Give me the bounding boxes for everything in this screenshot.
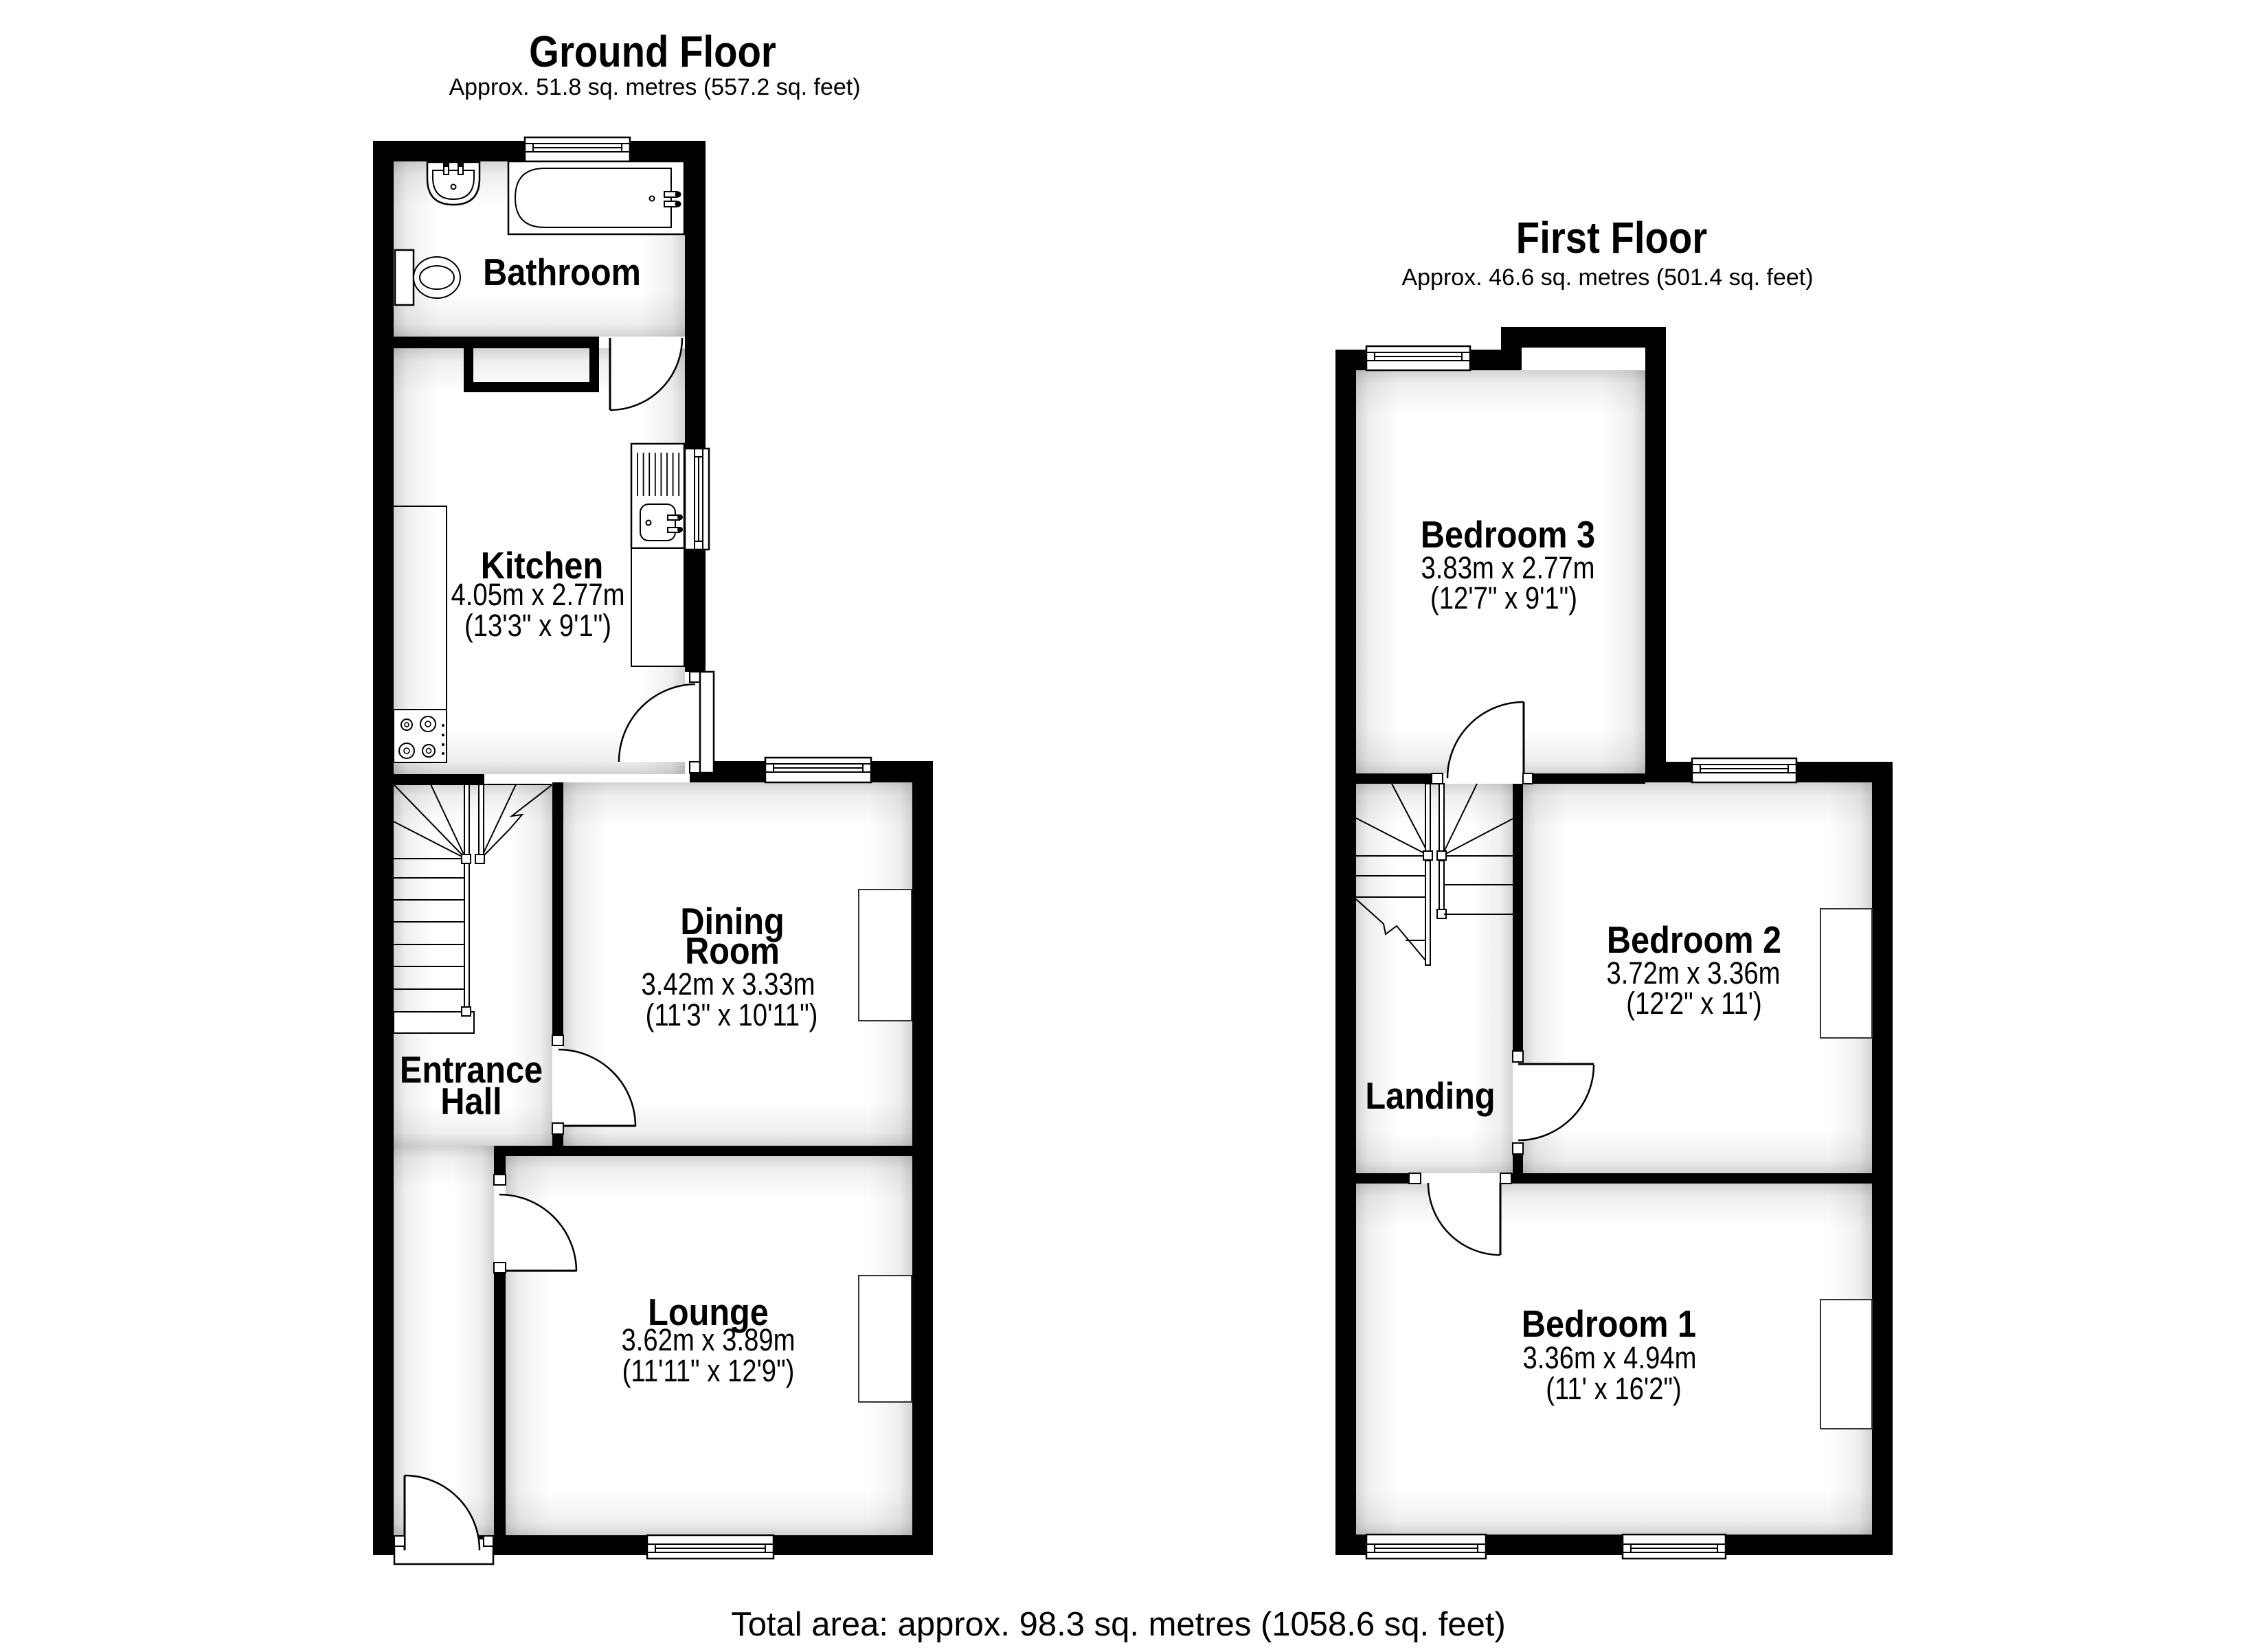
- svg-text:(11'3" x 10'11"): (11'3" x 10'11"): [646, 997, 818, 1032]
- svg-text:Hall: Hall: [440, 1080, 501, 1122]
- svg-text:First Floor: First Floor: [1516, 213, 1707, 262]
- svg-text:Ground Floor: Ground Floor: [529, 27, 776, 76]
- svg-text:(11'11" x 12'9"): (11'11" x 12'9"): [622, 1353, 795, 1388]
- svg-text:Bedroom 1: Bedroom 1: [1522, 1303, 1696, 1345]
- svg-text:(11' x 16'2"): (11' x 16'2"): [1546, 1371, 1682, 1406]
- svg-text:3.36m x 4.94m: 3.36m x 4.94m: [1523, 1340, 1697, 1375]
- svg-text:(13'3" x 9'1"): (13'3" x 9'1"): [464, 608, 611, 643]
- svg-text:3.62m x 3.89m: 3.62m x 3.89m: [622, 1322, 796, 1357]
- svg-text:3.42m x 3.33m: 3.42m x 3.33m: [642, 966, 815, 1002]
- svg-text:(12'7" x 9'1"): (12'7" x 9'1"): [1430, 580, 1577, 615]
- svg-text:Bathroom: Bathroom: [483, 251, 641, 293]
- svg-text:Approx. 51.8 sq. metres (557.2: Approx. 51.8 sq. metres (557.2 sq. feet): [449, 74, 860, 100]
- svg-text:4.05m x 2.77m: 4.05m x 2.77m: [451, 577, 625, 612]
- svg-text:(12'2" x 11'): (12'2" x 11'): [1626, 986, 1762, 1021]
- svg-text:Total area: approx. 98.3 sq. m: Total area: approx. 98.3 sq. metres (105…: [731, 1606, 1506, 1643]
- svg-text:Approx. 46.6 sq. metres (501.4: Approx. 46.6 sq. metres (501.4 sq. feet): [1401, 264, 1813, 291]
- svg-text:Landing: Landing: [1365, 1075, 1495, 1117]
